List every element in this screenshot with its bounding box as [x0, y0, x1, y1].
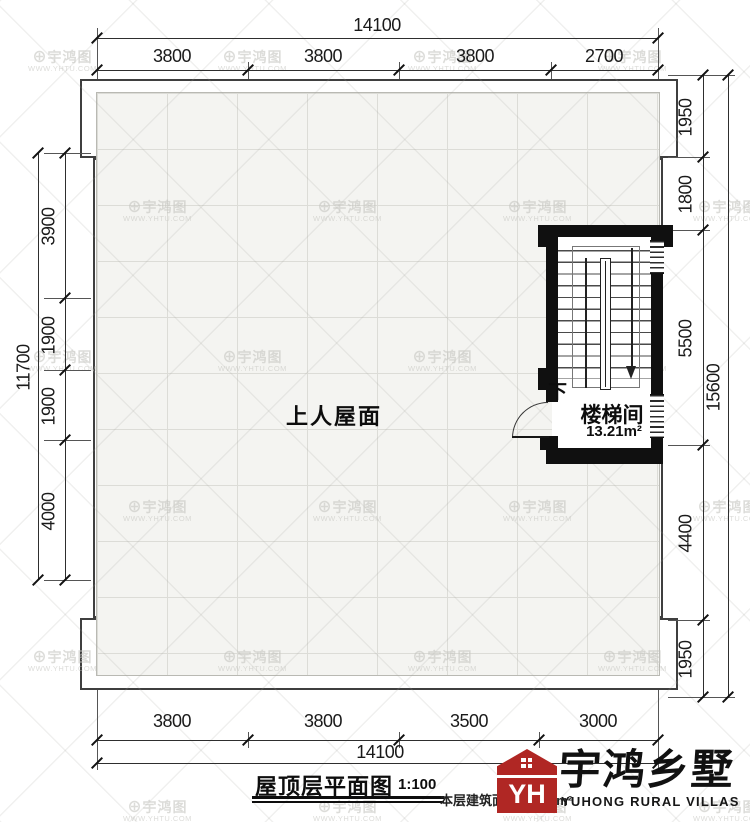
dim-bottom-total: 14100 [338, 742, 422, 763]
dim-top-seg-3: 3800 [433, 46, 517, 67]
logo-name-en: YUHONG RURAL VILLAS [561, 794, 750, 809]
dim-left-seg-3: 1900 [39, 365, 60, 449]
dim-bottom-seg-4: 3000 [556, 711, 640, 732]
watermark-tile: ⊕宇鸿图WWW.YHTU.COM [693, 500, 750, 524]
dim-line-top-total [97, 38, 658, 39]
yuhong-logo-icon: YH [497, 749, 557, 813]
stairwell-wall-top [546, 225, 663, 237]
stairwell-window-upper [650, 240, 664, 274]
floor-plan-canvas: 上人屋面 下 楼梯间 13.21m² 14100 3800 3800 3800 … [0, 0, 750, 822]
stair-down-arrowhead [626, 366, 636, 379]
stair-direction-line-left [585, 258, 587, 388]
stair-room-area: 13.21m² [560, 423, 668, 440]
stair-center-railing [600, 258, 611, 390]
dim-top-seg-4: 2700 [562, 46, 646, 67]
stairwell-wall-bottom [546, 448, 663, 464]
dim-right-seg-1: 1950 [676, 76, 697, 160]
dim-line-top-segments [97, 70, 658, 71]
dim-bottom-seg-2: 3800 [281, 711, 365, 732]
title-underline-2 [252, 801, 444, 803]
dim-left-total: 11700 [14, 326, 35, 410]
watermark-tile: ⊕宇鸿图WWW.YHTU.COM [313, 800, 382, 824]
dim-top-seg-2: 3800 [281, 46, 365, 67]
dim-right-seg-3: 5500 [676, 297, 697, 381]
watermark-tile: ⊕宇鸿图WWW.YHTU.COM [693, 200, 750, 224]
watermark-tile: ⊕宇鸿图WWW.YHTU.COM [123, 800, 192, 824]
dim-right-seg-5: 1950 [676, 618, 697, 702]
dim-extension-line [97, 690, 98, 770]
dim-line-right-total [728, 75, 729, 697]
door-leaf [512, 436, 549, 438]
dim-bottom-seg-1: 3800 [130, 711, 214, 732]
dim-left-seg-1: 3900 [39, 185, 60, 269]
logo-monogram: YH [497, 776, 557, 812]
logo-window-glyph [521, 758, 532, 768]
dim-right-total: 15600 [704, 346, 725, 430]
drawing-scale: 1:100 [398, 776, 436, 793]
dim-extension-line [44, 580, 91, 581]
title-underline-1 [252, 796, 444, 799]
watermark-tile: ⊕宇鸿图WWW.YHTU.COM [28, 50, 97, 74]
dim-left-seg-4: 4000 [39, 470, 60, 554]
logo-name-cn: 宇鸿乡墅 [557, 746, 750, 794]
dim-top-total: 14100 [335, 15, 419, 36]
dim-extension-line [44, 153, 91, 154]
dim-right-seg-2: 1800 [676, 153, 697, 237]
dim-right-seg-4: 4400 [676, 492, 697, 576]
stair-direction-line-down [631, 248, 633, 368]
dim-top-seg-1: 3800 [130, 46, 214, 67]
dim-bottom-seg-3: 3500 [427, 711, 511, 732]
roof-area-label: 上人屋面 [272, 399, 396, 431]
